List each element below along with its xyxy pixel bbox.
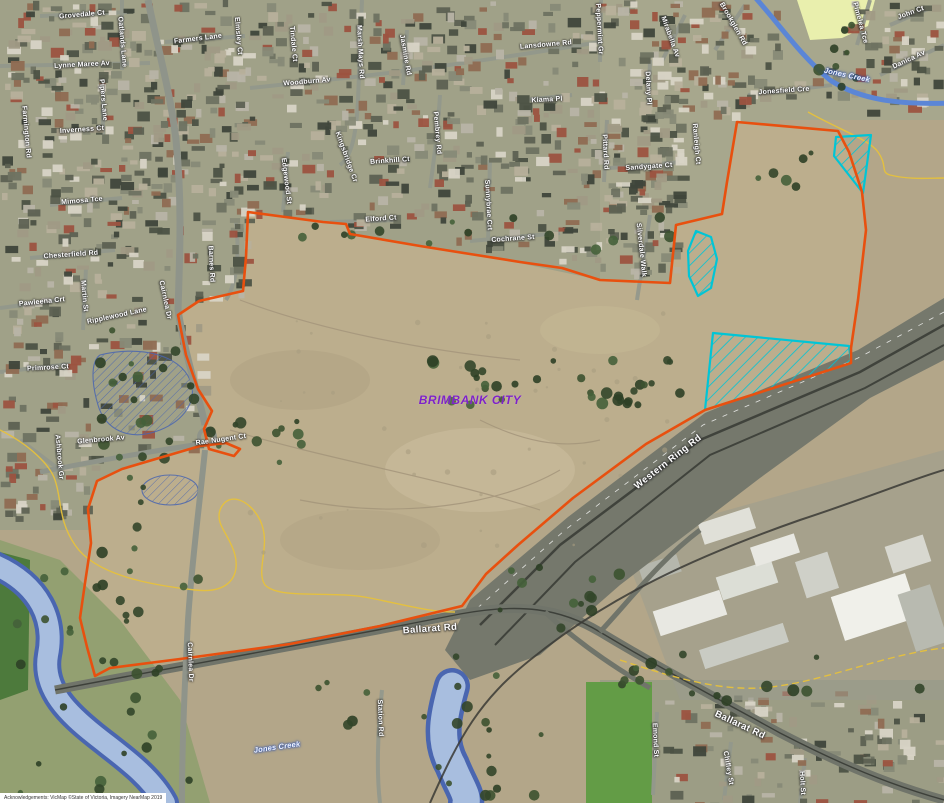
map-attribution: Acknowledgements: VicMap ©State of Victo… bbox=[0, 793, 166, 803]
pond-hatch bbox=[142, 475, 198, 505]
aerial-map-canvas[interactable]: Grovedale CtFarmers LaneOatlands LaneLyn… bbox=[0, 0, 944, 803]
sports-field bbox=[586, 682, 652, 803]
aerial-imagery bbox=[0, 0, 944, 803]
